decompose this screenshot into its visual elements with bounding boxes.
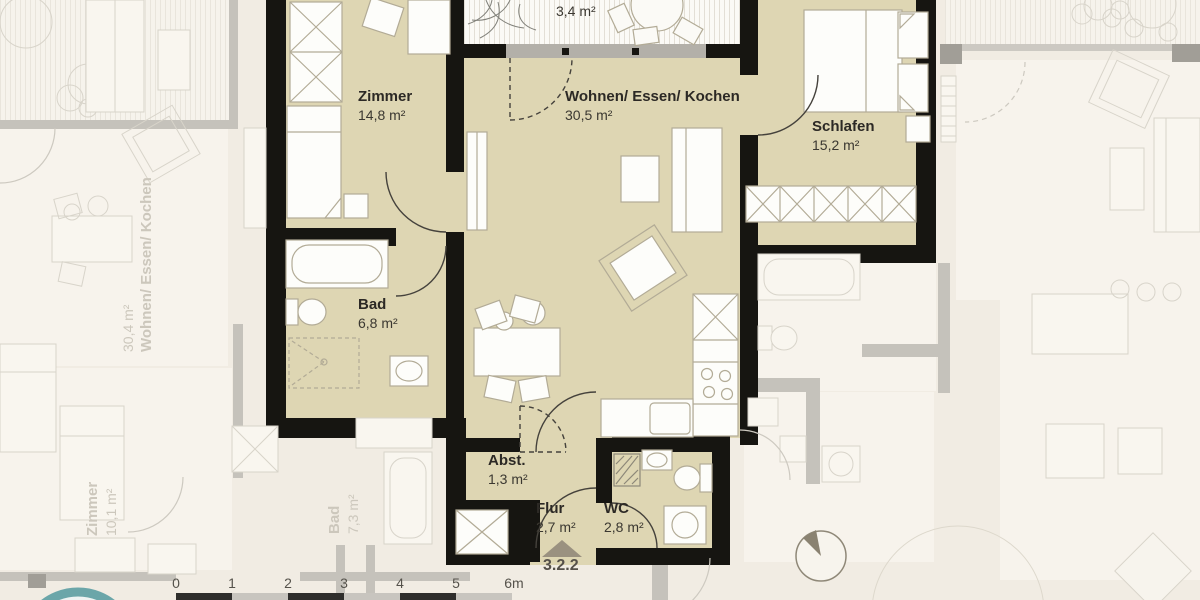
scale-tick: 1 <box>228 575 236 591</box>
neighbor-wall <box>336 545 345 600</box>
wall-segment <box>464 44 506 58</box>
wall-segment <box>266 0 286 438</box>
scale-tick: 0 <box>172 575 180 591</box>
unit-number: 3.2.2 <box>543 557 579 575</box>
wall-segment <box>712 438 730 565</box>
wall-segment <box>916 0 936 263</box>
room-label-wc: WC 2,8 m² <box>604 500 644 536</box>
sill-tick <box>562 48 569 55</box>
door-gap <box>396 228 446 246</box>
entrance-marker <box>542 540 582 557</box>
scale-segment <box>344 593 400 600</box>
neighbor-wall <box>0 572 176 581</box>
scale-segment <box>232 593 288 600</box>
landscape-circle <box>22 592 134 600</box>
wall-segment <box>266 418 466 438</box>
room-name: Wohnen/ Essen/ Kochen <box>565 88 740 107</box>
wall-segment <box>446 232 464 438</box>
wall-segment <box>740 245 936 263</box>
room-name: Zimmer <box>358 88 412 107</box>
scale-tick: 4 <box>396 575 404 591</box>
scale-tick: 6m <box>504 575 523 591</box>
scale-tick: 5 <box>452 575 460 591</box>
scale-tick: 3 <box>340 575 348 591</box>
room-label-abst: Abst. 1,3 m² <box>488 452 528 488</box>
neighbor-label-bad: Bad 7,3 m² <box>326 494 362 534</box>
room-label-bad: Bad 6,8 m² <box>358 296 398 332</box>
wall-segment <box>466 438 520 452</box>
scale-segment <box>176 593 232 600</box>
neighbor-label-wohnen: 30,4 m² Wohnen/ Essen/ Kochen <box>120 177 156 352</box>
room-area: 6,8 m² <box>358 315 398 333</box>
scale-tick: 2 <box>284 575 292 591</box>
neighbor-wall <box>0 120 238 129</box>
neighbor-balcony-sill <box>962 44 1172 51</box>
wall-segment <box>446 0 464 172</box>
room-area: 7,3 m² <box>345 494 363 534</box>
shaft-block <box>446 500 540 562</box>
wall-segment <box>740 135 758 445</box>
room-area: 15,2 m² <box>812 137 875 155</box>
neighbor-balcony-right <box>945 0 1200 44</box>
wall-segment <box>596 548 730 565</box>
wall-segment <box>740 0 758 75</box>
door-gap <box>740 75 758 135</box>
scale-segment <box>400 593 456 600</box>
wall-segment <box>286 228 396 246</box>
room-area: 14,8 m² <box>358 107 412 125</box>
neighbor-room <box>956 60 1200 300</box>
wall-segment <box>596 438 612 503</box>
neighbor-wall <box>806 392 820 484</box>
room-name: Flur <box>536 500 576 519</box>
room-name: WC <box>604 500 644 519</box>
room-label-zimmer: Zimmer 14,8 m² <box>358 88 412 124</box>
room-area: 10,1 m² <box>103 482 121 536</box>
floor-plan: Zimmer 14,8 m² Wohnen/ Essen/ Kochen 30,… <box>0 0 1200 600</box>
scale-segment <box>456 593 512 600</box>
room-label-loggia: Loggia 3,4 m² <box>556 0 605 20</box>
room-name: Bad <box>326 494 345 534</box>
loggia-sill <box>506 44 706 58</box>
room-area: 30,5 m² <box>565 107 740 125</box>
room-label-flur: Flur 2,7 m² <box>536 500 576 536</box>
neighbor-room <box>744 392 934 562</box>
neighbor-wall <box>300 572 470 581</box>
neighbor-wall <box>1172 44 1200 62</box>
room-area: 3,4 m² <box>556 3 605 21</box>
room-name: Bad <box>358 296 398 315</box>
room-area: 30,4 m² <box>120 177 138 352</box>
neighbor-room <box>0 128 228 366</box>
neighbor-balcony-left <box>0 0 230 120</box>
room-name: Schlafen <box>812 118 875 137</box>
room-label-wohnen: Wohnen/ Essen/ Kochen 30,5 m² <box>565 88 740 124</box>
room-name: Zimmer <box>84 482 103 536</box>
neighbor-wall <box>229 0 238 122</box>
neighbor-label-zimmer: Zimmer 10,1 m² <box>84 482 120 536</box>
neighbor-wall <box>28 574 46 588</box>
neighbor-wall <box>366 545 375 600</box>
room-label-schlafen: Schlafen 15,2 m² <box>812 118 875 154</box>
neighbor-wall <box>233 324 243 478</box>
door-gap <box>446 172 464 232</box>
room-area: 2,7 m² <box>536 519 576 537</box>
neighbor-room <box>758 263 936 391</box>
scale-segment <box>288 593 344 600</box>
room-area: 2,8 m² <box>604 519 644 537</box>
neighbor-room <box>0 368 232 570</box>
neighbor-wall <box>938 263 950 393</box>
room-area: 1,3 m² <box>488 471 528 489</box>
room-name: Wohnen/ Essen/ Kochen <box>138 177 157 352</box>
sill-tick <box>632 48 639 55</box>
neighbor-room <box>1000 300 1200 580</box>
room-name: Abst. <box>488 452 528 471</box>
neighbor-wall <box>940 44 962 64</box>
neighbor-wall <box>862 344 950 357</box>
